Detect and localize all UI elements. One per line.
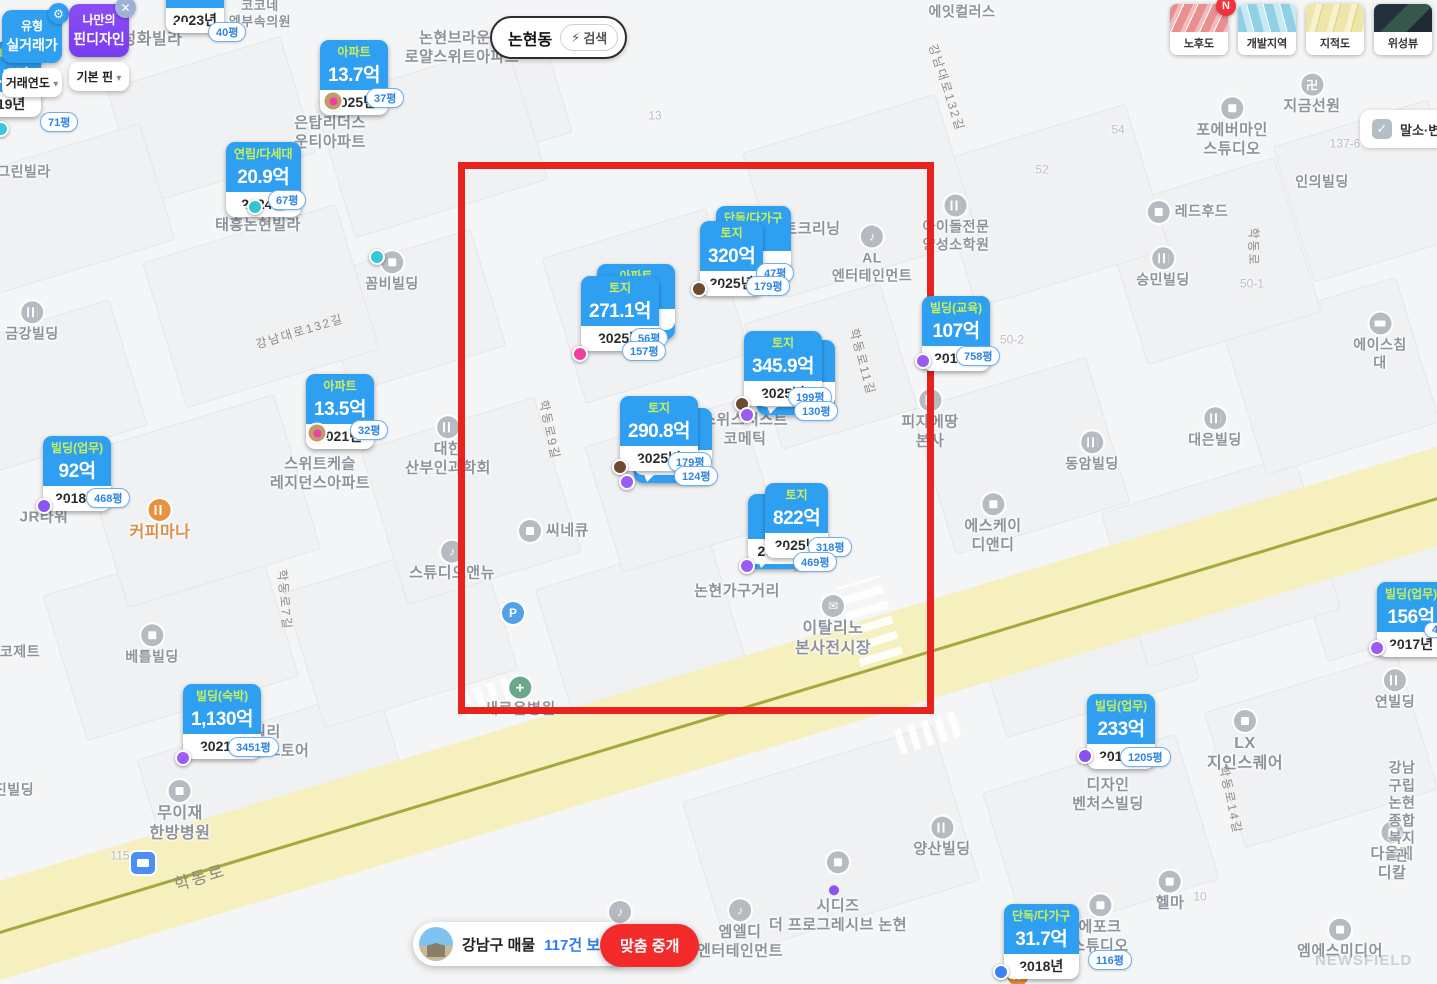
marker-category: 토지	[765, 483, 828, 503]
map-pin[interactable]	[691, 281, 707, 297]
map-pin[interactable]	[0, 121, 9, 137]
marker-category: 토지	[581, 276, 659, 296]
bubble-tail	[1013, 968, 1027, 984]
map-label: 디자인 벤처스빌딩	[1072, 776, 1144, 814]
dot-icon	[141, 624, 163, 646]
marker-price	[166, 0, 224, 8]
bubble-tail	[192, 748, 206, 768]
map-label: 52	[1035, 163, 1048, 178]
map-label-text: 무이재 한방병원	[150, 804, 211, 844]
marker-price: 271.1억	[581, 296, 659, 326]
map-type-satellite[interactable]: 위성뷰	[1374, 4, 1432, 55]
map-label: 13	[648, 109, 661, 124]
marker-price: 31.7억	[1004, 924, 1079, 954]
marker-price: 1,130억	[183, 704, 261, 734]
map-label: ♪엠엘디 엔터테인먼트	[697, 899, 783, 961]
search-region-text: 논현동	[508, 26, 552, 50]
gear-icon[interactable]: ⚙	[48, 3, 69, 24]
area-badge: 1205평	[1120, 747, 1171, 767]
map-label-text: 강남구립 논현 종합복지관	[1385, 760, 1420, 865]
temple-icon: 卍	[1301, 74, 1323, 96]
map-label: 헬마	[1156, 871, 1185, 914]
bubble-tail	[757, 558, 771, 578]
map-label-text: 52	[1035, 163, 1048, 178]
bubble-tail	[753, 395, 767, 415]
dot-icon	[1089, 894, 1111, 916]
marker-category: 빌딩(업무)	[43, 436, 111, 456]
bus-icon	[131, 852, 155, 874]
map-type-development[interactable]: 개발지역	[1238, 4, 1296, 55]
map-label: 포에버마인 스튜디오	[1196, 97, 1268, 159]
marker-category: 토지	[700, 221, 763, 241]
development-thumbnail	[1238, 4, 1296, 32]
map-label-text: 50-2	[1000, 333, 1024, 348]
area-badge: 130평	[794, 401, 838, 421]
map-pin[interactable]	[829, 885, 839, 895]
area-badge: 758평	[956, 346, 1000, 366]
checkbox-checked-icon[interactable]: ✓	[1372, 119, 1392, 139]
search-button[interactable]: ⚡ 검색	[560, 24, 618, 51]
map-label-text: 금강빌딩	[5, 325, 59, 343]
area-badge: 44	[1424, 622, 1437, 638]
map-label: 레드후드	[1148, 201, 1229, 223]
music-icon: ♪	[609, 901, 631, 923]
map-label: 인의빌딩	[1295, 173, 1349, 191]
area-badge: 468평	[86, 488, 130, 508]
search-pill[interactable]: 논현동 ⚡ 검색	[490, 16, 627, 59]
marker-price: 345.9억	[744, 351, 822, 381]
map-pin[interactable]	[739, 407, 755, 423]
map-pin[interactable]	[612, 459, 628, 475]
new-badge: N	[1216, 0, 1236, 16]
map-label: 시디즈 더 프로그레시브 논현	[769, 851, 907, 935]
area-badge: 67평	[268, 190, 306, 210]
bubble-tail	[52, 500, 66, 520]
area-badge: 40평	[208, 22, 246, 42]
area-badge: 469평	[793, 552, 837, 572]
map-label: 학동로	[1246, 227, 1261, 266]
cadastral-thumbnail	[1306, 4, 1364, 32]
pin-design-panel[interactable]: 나만의 핀디자인 ✕ 기본 핀 ▾	[69, 4, 129, 91]
map-label: 성화빌라	[122, 30, 183, 50]
map-label-text: 코제트	[0, 643, 40, 661]
map-label: 태흥논현빌라	[215, 217, 301, 236]
map-label-text: 진빌딩	[0, 781, 34, 799]
map-type-aging[interactable]: 노후도 N	[1170, 4, 1228, 55]
dot-icon	[1221, 97, 1243, 119]
chevron-down-icon: ▾	[116, 73, 121, 84]
dot-icon	[1234, 710, 1256, 732]
map-label-text: 헬마	[1156, 895, 1185, 914]
map-label-text: 엠엘디 엔터테인먼트	[697, 923, 783, 961]
dot-icon	[169, 780, 191, 802]
bubble-tail	[175, 22, 189, 42]
map-pin[interactable]	[325, 93, 342, 110]
map-pin[interactable]	[739, 558, 755, 574]
building-icon	[945, 195, 967, 217]
map-label: 에잇컬러스	[929, 3, 996, 21]
music-icon: ♪	[729, 899, 751, 921]
area-badge: 116평	[1088, 950, 1132, 970]
marker-price: 20.9억	[226, 162, 301, 192]
map-label-text: 시디즈 더 프로그레시브 논현	[769, 897, 907, 935]
map-label: 베틀빌딩	[125, 624, 179, 666]
map-label-text: 레드후드	[1175, 203, 1229, 221]
marker-price: 92억	[43, 456, 111, 486]
marker-category: 빌딩(업무)	[1377, 582, 1437, 602]
region-name: 강남구 매물	[462, 934, 535, 955]
pin-panel-line2: 핀디자인	[71, 29, 127, 49]
marker-category: 토지	[744, 331, 822, 351]
map-label: 에포크 스튜디오	[1071, 894, 1128, 956]
map-label: 에이스침대	[1352, 313, 1409, 372]
type-panel-header[interactable]: 유형 실거래가 ⚙	[2, 10, 62, 63]
map-label: 스위트케슬 레지던스아파트	[270, 455, 370, 493]
erase-change-filter[interactable]: ✓ 말소·변경	[1360, 110, 1437, 148]
bed-icon	[1369, 313, 1391, 335]
marker-category: 아파트	[306, 374, 374, 394]
area-badge: 179평	[746, 276, 790, 296]
map-canvas[interactable]: 성화빌라코코네 엠부속의원논현브라운스 로얄스위트아파트에잇컬러스강남대로132…	[0, 0, 1437, 984]
map-label: 금강빌딩	[5, 301, 59, 343]
region-thumbnail	[419, 927, 453, 961]
map-label-text: 스위트케슬 레지던스아파트	[270, 455, 370, 493]
bubble-tail	[590, 340, 604, 360]
dot-icon	[982, 493, 1004, 515]
map-label-text: 50-1	[1240, 277, 1264, 292]
map-label: 무이재 한방병원	[150, 780, 211, 844]
map-label-text: 연빌딩	[1375, 693, 1415, 711]
building-icon	[1152, 247, 1174, 269]
map-label-text: 에잇컬러스	[929, 3, 996, 21]
map-label: 동암빌딩	[1065, 431, 1119, 473]
marker-price: 822억	[765, 503, 828, 533]
map-label: 그린빌라	[0, 163, 51, 181]
building-icon	[1204, 407, 1226, 429]
map-label: 54	[1111, 123, 1124, 138]
chevron-down-icon: ▾	[53, 79, 58, 90]
price-bubble[interactable]: 단독/다가구31.7억2018년	[1004, 904, 1079, 979]
map-label: 에스케이 디앤디	[964, 493, 1021, 555]
map-pin[interactable]	[915, 353, 931, 369]
map-label-text: 동암빌딩	[1065, 455, 1119, 473]
building-icon	[21, 301, 43, 323]
map-pin[interactable]	[309, 425, 326, 442]
area-badge: 71평	[40, 112, 78, 132]
map-label-text: 대은빌딩	[1188, 431, 1242, 449]
area-badge: 124평	[674, 466, 718, 486]
map-pin[interactable]	[993, 964, 1009, 980]
map-label: 연빌딩	[1375, 669, 1415, 711]
marker-price: 107억	[922, 316, 990, 346]
map-label: 卍지금선원	[1283, 74, 1340, 117]
map-label-text: 137-6	[1330, 137, 1361, 152]
map-label: ♪	[609, 901, 631, 923]
map-pin[interactable]	[1077, 748, 1093, 764]
marker-category: 단독/다가구	[1004, 904, 1079, 924]
custom-broker-button[interactable]: 맞춤 중개	[600, 924, 699, 967]
marker-price: 290.8억	[620, 416, 698, 446]
map-label	[131, 852, 155, 874]
area-badge: 3451평	[228, 737, 279, 757]
marker-price: 13.7억	[320, 60, 388, 90]
bubble-tail	[643, 472, 657, 492]
pin-panel-header[interactable]: 나만의 핀디자인 ✕	[69, 4, 129, 57]
type-panel[interactable]: 유형 실거래가 ⚙ 거래연도 ▾	[2, 10, 62, 97]
map-type-switcher: 노후도 N 개발지역 지적도 위성뷰	[1170, 4, 1432, 55]
building-icon	[1384, 669, 1406, 691]
map-pin[interactable]	[619, 474, 635, 490]
map-label: 대은빌딩	[1188, 407, 1242, 449]
map-label-text: 꼼비빌딩	[365, 275, 419, 293]
map-label-text: 지금선원	[1283, 98, 1340, 117]
area-badge: 37평	[366, 88, 404, 108]
map-label: 137-6	[1330, 137, 1361, 152]
bolt-icon: ⚡	[571, 30, 580, 46]
dot-icon	[1159, 871, 1181, 893]
map-pin[interactable]	[36, 498, 52, 514]
area-badge: 157평	[622, 341, 666, 361]
bubble-tail	[1096, 758, 1110, 778]
map-label: 승민빌딩	[1136, 247, 1190, 289]
map-label: LX 지인스퀘어	[1207, 710, 1283, 774]
dot-icon	[1329, 919, 1351, 941]
map-label-text: 베틀빌딩	[125, 648, 179, 666]
map-label: 50-1	[1240, 277, 1264, 292]
area-badge: 32평	[350, 420, 388, 440]
bubble-tail	[766, 404, 780, 424]
map-label-text: 그린빌라	[0, 163, 51, 181]
map-label-text: 13	[648, 109, 661, 124]
default-pin-dropdown[interactable]: 기본 핀 ▾	[69, 62, 129, 91]
marker-category: 연립/다세대	[226, 142, 301, 162]
map-label-text: 54	[1111, 123, 1124, 138]
map-pin[interactable]	[1369, 640, 1385, 656]
map-label: 50-2	[1000, 333, 1024, 348]
map-label-text: 학동로	[1246, 227, 1261, 266]
watermark: NEWSFIELD	[1315, 952, 1412, 969]
map-label-text: 인의빌딩	[1295, 173, 1349, 191]
map-pin[interactable]	[247, 199, 263, 215]
chair-icon	[827, 851, 849, 873]
map-label-text: 115	[110, 849, 129, 864]
dot-icon	[1148, 201, 1170, 223]
trade-year-dropdown[interactable]: 거래연도 ▾	[2, 68, 62, 97]
map-label-text: 포에버마인 스튜디오	[1196, 121, 1268, 159]
map-label-text: 커피마나	[130, 523, 191, 543]
map-label-text: 디자인 벤처스빌딩	[1072, 776, 1144, 814]
marker-price: 233억	[1087, 714, 1155, 744]
map-type-cadastral[interactable]: 지적도	[1306, 4, 1364, 55]
price-bubble[interactable]: 빌딩(업무)156억2017년	[1377, 582, 1437, 657]
marker-category: 빌딩(업무)	[1087, 694, 1155, 714]
satellite-thumbnail	[1374, 4, 1432, 32]
map-label: 코제트	[0, 643, 40, 661]
marker-price: 320억	[700, 241, 763, 271]
map-label-text: 10	[1193, 890, 1206, 905]
map-label-text: 성화빌라	[122, 30, 183, 50]
map-pin[interactable]	[572, 346, 588, 362]
map-pin[interactable]	[369, 249, 385, 265]
map-label-text: 승민빌딩	[1136, 271, 1190, 289]
marker-category: 빌딩(숙박)	[183, 684, 261, 704]
bubble-tail	[774, 547, 788, 567]
bubble-tail	[709, 285, 723, 305]
building-icon	[931, 817, 953, 839]
marker-category: 아파트	[320, 40, 388, 60]
marker-category: 빌딩(교육)	[922, 296, 990, 316]
map-label-text: 에스케이 디앤디	[964, 517, 1021, 555]
map-label: 115	[110, 849, 129, 864]
map-label-text: 에이스침대	[1352, 337, 1409, 372]
map-label: 10	[1193, 890, 1206, 905]
bubble-tail	[1386, 646, 1400, 666]
marker-category: 토지	[620, 396, 698, 416]
map-label-text: 태흥논현빌라	[215, 217, 301, 236]
map-label: 진빌딩	[0, 781, 34, 799]
building-icon	[1081, 431, 1103, 453]
type-panel-line2: 실거래가	[4, 35, 60, 55]
map-pin[interactable]	[175, 750, 191, 766]
map-label: 강남구립 논현 종합복지관	[1385, 760, 1420, 865]
map-label: 양산빌딩	[913, 817, 970, 860]
bubble-tail	[931, 360, 945, 380]
coffee-icon	[149, 499, 171, 521]
map-label-text: 양산빌딩	[913, 841, 970, 860]
map-label: 커피마나	[130, 499, 191, 543]
building-icon	[437, 416, 459, 438]
